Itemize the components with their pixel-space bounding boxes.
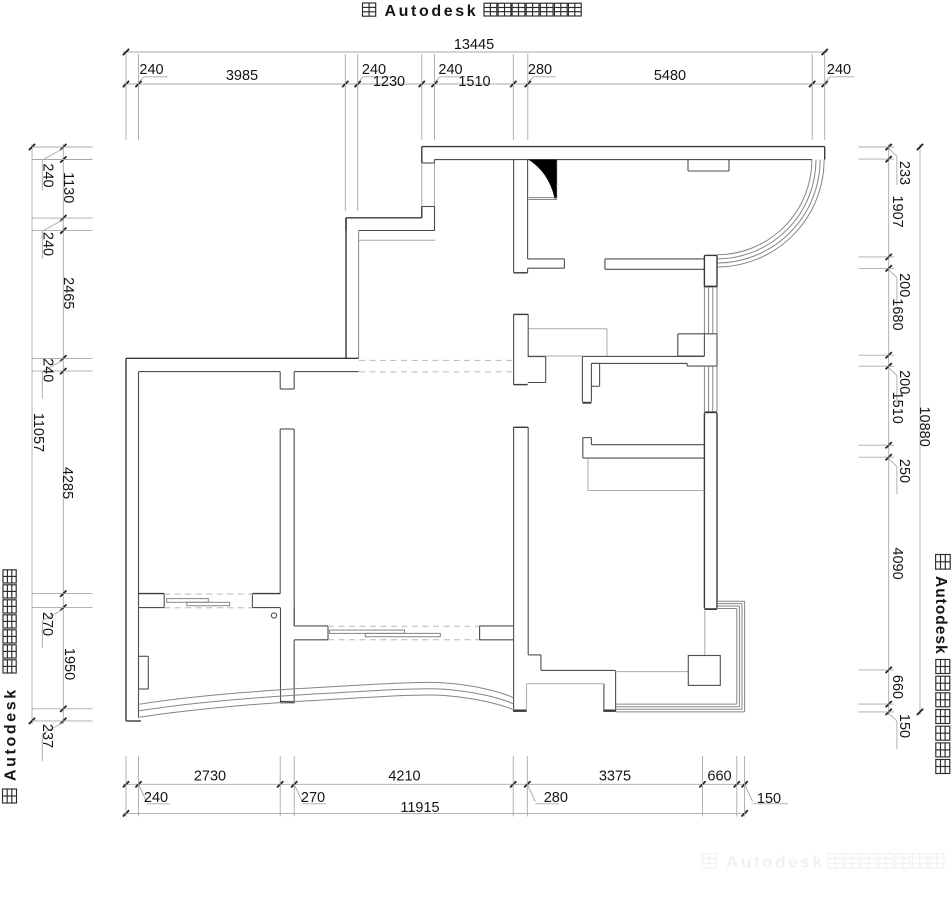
svg-text:1950: 1950 <box>61 648 77 680</box>
svg-text:280: 280 <box>528 62 552 78</box>
svg-text:250: 250 <box>896 459 912 483</box>
svg-text:233: 233 <box>896 161 912 185</box>
svg-text:1680: 1680 <box>889 298 905 330</box>
svg-text:237: 237 <box>39 724 55 748</box>
svg-text:1510: 1510 <box>889 392 905 424</box>
svg-text:240: 240 <box>827 62 851 78</box>
svg-text:240: 240 <box>39 163 55 187</box>
svg-text:3375: 3375 <box>599 769 631 785</box>
svg-text:150: 150 <box>896 714 912 738</box>
svg-text:1510: 1510 <box>458 74 490 90</box>
svg-text:11057: 11057 <box>30 413 46 452</box>
svg-text:280: 280 <box>544 790 568 806</box>
svg-text:660: 660 <box>707 769 731 785</box>
svg-text:Autodesk: Autodesk <box>385 3 479 20</box>
svg-text:4210: 4210 <box>388 769 420 785</box>
svg-text:2730: 2730 <box>194 769 226 785</box>
svg-text:270: 270 <box>301 790 325 806</box>
svg-text:5480: 5480 <box>654 68 686 84</box>
svg-text:13445: 13445 <box>454 37 494 53</box>
svg-text:Autodesk: Autodesk <box>3 687 20 781</box>
svg-text:200: 200 <box>896 273 912 297</box>
svg-text:240: 240 <box>39 232 55 256</box>
svg-text:240: 240 <box>39 358 55 382</box>
svg-text:660: 660 <box>889 675 905 699</box>
svg-text:2465: 2465 <box>60 277 76 309</box>
svg-text:1130: 1130 <box>60 172 76 203</box>
svg-text:1907: 1907 <box>889 195 905 227</box>
svg-text:240: 240 <box>139 62 163 78</box>
svg-text:1230: 1230 <box>373 74 405 90</box>
svg-text:150: 150 <box>757 791 781 807</box>
svg-text:11915: 11915 <box>400 800 439 816</box>
svg-text:Autodesk: Autodesk <box>726 853 824 872</box>
svg-text:270: 270 <box>39 612 55 636</box>
svg-text:4285: 4285 <box>59 467 75 499</box>
svg-text:240: 240 <box>144 790 168 806</box>
svg-text:10880: 10880 <box>916 406 932 446</box>
svg-text:4090: 4090 <box>889 547 905 579</box>
svg-text:Autodesk: Autodesk <box>932 576 949 655</box>
svg-text:3985: 3985 <box>226 68 258 84</box>
